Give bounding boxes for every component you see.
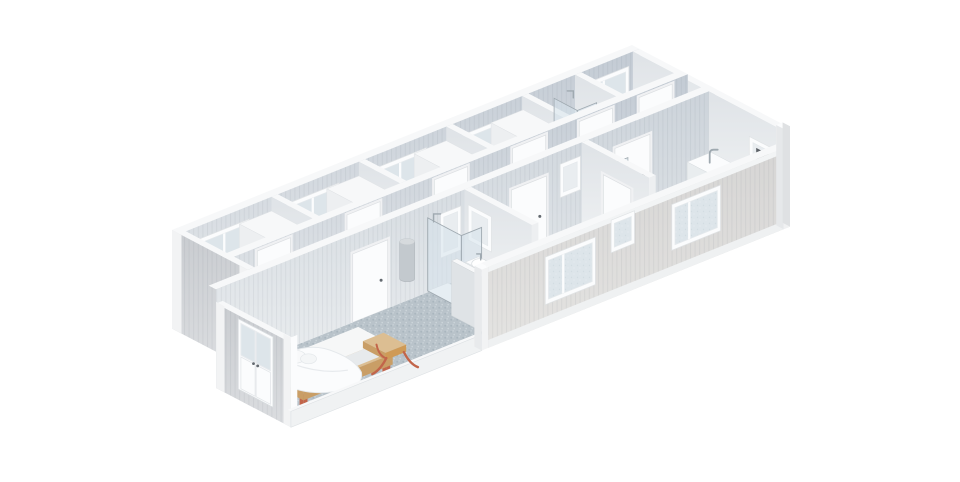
facade-joint-post (474, 263, 488, 350)
entry-door-glass-left (241, 324, 255, 363)
bed-pillow-2 (301, 354, 317, 364)
entry-door-handle-right (256, 365, 259, 368)
left-front-post-corner (284, 334, 291, 428)
building-layers (172, 45, 790, 427)
left-front-post-north (216, 302, 224, 393)
water-heater (400, 238, 415, 281)
entry-door-handle-left (252, 362, 255, 365)
render-canvas (0, 0, 960, 482)
east-end-outer-edge (783, 122, 790, 226)
left-back-corner-post (172, 230, 182, 334)
building-isometric-render (0, 0, 960, 482)
